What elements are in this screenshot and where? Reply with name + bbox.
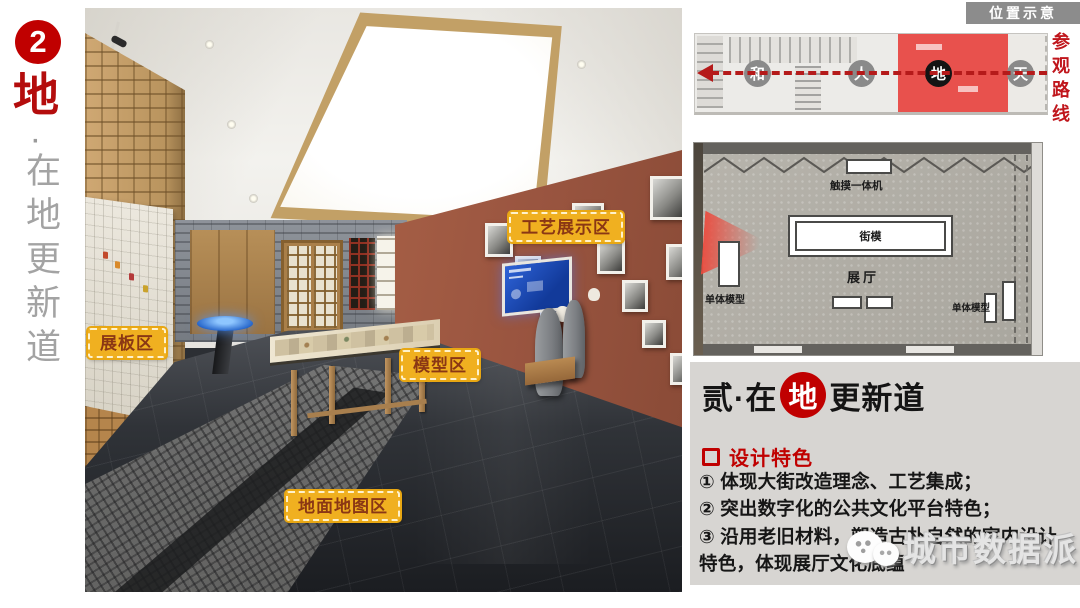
glass-doors	[281, 240, 343, 334]
board-chip	[115, 261, 120, 269]
touch-machine-rect	[846, 159, 892, 174]
label-floor-map-area: 地面地图区	[286, 491, 400, 521]
photo-frame	[597, 240, 625, 274]
route-label-vertical: 参观路线	[1051, 32, 1069, 128]
unit-model-left-label: 单体模型	[705, 291, 745, 306]
wechat-bubble-small-icon	[873, 542, 899, 566]
panel-title-prefix: 贰·在	[702, 373, 777, 418]
description-panel: 贰·在 地 更新道 设计特色 ① 体现大街改造理念、工艺集成； ② 突出数字化的…	[690, 362, 1080, 585]
board-chip	[103, 251, 108, 259]
downlight-icon	[205, 40, 214, 49]
downlight-icon	[577, 60, 586, 69]
sidebar: 2 地 · 在地更新道	[0, 0, 85, 608]
plan-wall-right	[1031, 143, 1042, 355]
label-craft-display-area: 工艺展示区	[509, 212, 623, 242]
photo-frame	[650, 176, 682, 220]
watermark: 城市数据派	[847, 523, 1078, 571]
door-pane	[287, 246, 311, 328]
plan-partitions	[729, 37, 857, 63]
table-leg	[291, 370, 297, 436]
board-chip	[143, 285, 148, 293]
plan-glass-line	[1026, 155, 1028, 343]
unit-model-right-label: 单体模型	[952, 300, 990, 314]
route-arrow-line	[711, 71, 1047, 75]
white-pot	[588, 288, 600, 301]
route-arrowhead-icon	[697, 64, 713, 82]
watermark-text: 城市数据派	[903, 523, 1078, 571]
section-character: 地	[13, 72, 59, 118]
unit-model-right-rect	[1002, 281, 1016, 321]
plan-small-rect	[866, 296, 893, 309]
photo-frame	[666, 244, 682, 280]
location-strip-plan: 和 人 地 天	[694, 33, 1048, 115]
panel-title-suffix: 更新道	[829, 373, 925, 418]
downlight-icon	[249, 194, 258, 203]
label-display-board-area: 展板区	[88, 328, 166, 358]
photo-frame	[622, 280, 648, 312]
plan-small-rect	[832, 296, 862, 309]
downlight-icon	[227, 120, 236, 129]
plan-door-gap	[754, 346, 802, 353]
red-lattice-window	[349, 238, 375, 310]
exhibition-floor-plan: 触摸一体机 街模 展厅 单体模型 单体模型	[693, 142, 1043, 356]
door-pane	[314, 246, 338, 328]
touch-kiosk-screen	[197, 316, 253, 331]
plan-wall-bottom	[694, 344, 1042, 355]
location-badge: 位置示意	[966, 2, 1080, 24]
section-subtitle-vertical: 在地更新道	[23, 152, 58, 372]
photo-frame	[642, 320, 666, 348]
label-model-area: 模型区	[401, 350, 479, 380]
red-square-bullet-icon	[702, 448, 720, 466]
panel-title-circle: 地	[780, 372, 826, 418]
board-chip	[129, 273, 134, 281]
design-features-heading: 设计特色	[702, 442, 813, 471]
street-model-label: 街模	[860, 228, 882, 244]
design-features-title: 设计特色	[729, 442, 813, 471]
unit-model-left-rect	[718, 241, 740, 287]
street-model-inner-rect: 街模	[795, 221, 946, 251]
plan-wall-top	[694, 143, 1042, 154]
panel-title: 贰·在 地 更新道	[702, 372, 925, 418]
hall-label: 展厅	[847, 267, 879, 286]
photo-frame	[670, 353, 682, 385]
feature-item-2: ② 突出数字化的公共文化平台特色；	[699, 495, 1075, 522]
plan-door-gap	[906, 346, 954, 353]
section-number-badge: 2	[15, 20, 61, 64]
touch-machine-label: 触摸一体机	[830, 178, 883, 193]
plan-wall-left	[694, 143, 703, 355]
feature-item-1: ① 体现大街改造理念、工艺集成；	[699, 468, 1075, 495]
